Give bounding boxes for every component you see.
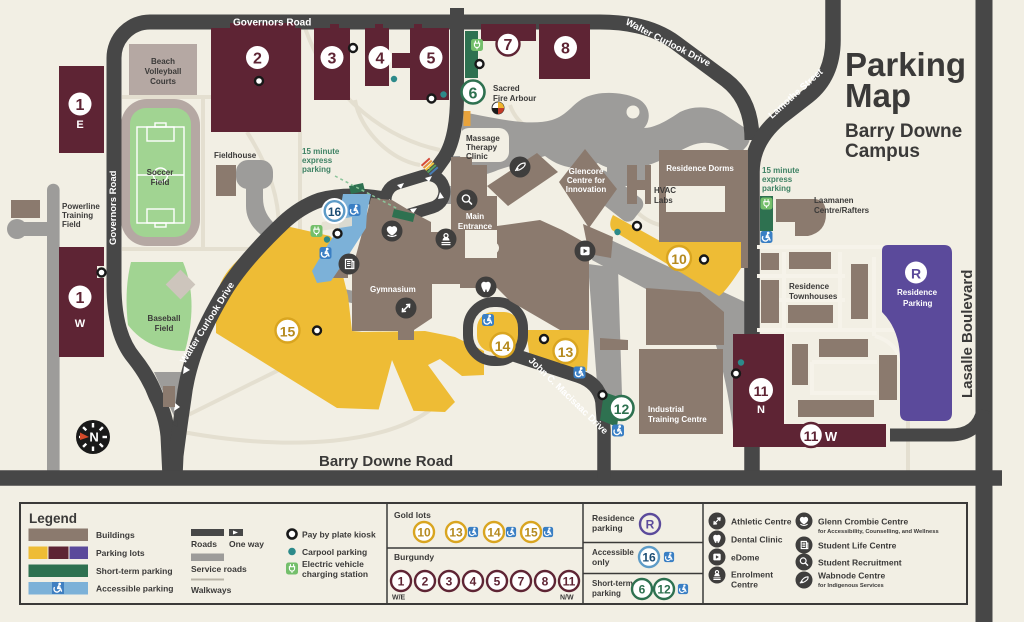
svg-text:Clinic: Clinic [466, 152, 488, 161]
svg-text:Short-term: Short-term [592, 579, 633, 588]
svg-text:3: 3 [446, 575, 453, 589]
svg-text:W/E: W/E [392, 595, 406, 602]
svg-text:HVAC: HVAC [654, 186, 676, 195]
svg-text:Therapy: Therapy [466, 143, 498, 152]
svg-text:eDome: eDome [731, 553, 760, 563]
svg-text:Fieldhouse: Fieldhouse [214, 151, 257, 160]
svg-text:11: 11 [804, 428, 819, 444]
svg-text:Soccer: Soccer [147, 168, 174, 177]
svg-text:Powerline: Powerline [62, 202, 100, 211]
svg-text:Barry Downe: Barry Downe [845, 121, 962, 142]
svg-text:express: express [302, 156, 333, 165]
svg-text:Lasalle Boulevard: Lasalle Boulevard [959, 270, 976, 398]
svg-text:parking: parking [302, 165, 331, 174]
svg-text:2: 2 [422, 575, 429, 589]
svg-text:Governors Road: Governors Road [108, 170, 119, 245]
svg-text:Pay by plate kiosk: Pay by plate kiosk [302, 530, 376, 540]
svg-text:Courts: Courts [150, 77, 176, 86]
svg-text:Beach: Beach [151, 57, 175, 66]
svg-text:Parking lots: Parking lots [96, 548, 145, 558]
svg-text:Laamanen: Laamanen [814, 196, 854, 205]
svg-text:6: 6 [639, 583, 646, 597]
svg-text:R: R [646, 518, 655, 532]
svg-text:Gymnasium: Gymnasium [370, 285, 416, 294]
svg-text:3: 3 [328, 51, 337, 68]
svg-text:16: 16 [642, 551, 656, 565]
svg-text:10: 10 [417, 526, 431, 540]
svg-text:Glenn Crombie Centre: Glenn Crombie Centre [818, 517, 908, 527]
svg-text:15: 15 [280, 324, 296, 340]
svg-text:Barry Downe Road: Barry Downe Road [319, 453, 453, 470]
svg-text:11: 11 [754, 383, 769, 399]
svg-text:Wabnode Centre: Wabnode Centre [818, 571, 885, 581]
svg-text:4: 4 [376, 51, 385, 68]
svg-text:Buildings: Buildings [96, 530, 135, 540]
svg-text:Governors Road: Governors Road [233, 18, 311, 29]
svg-text:15 minute: 15 minute [762, 166, 800, 175]
svg-text:Campus: Campus [845, 141, 920, 162]
svg-text:Fire Arbour: Fire Arbour [493, 94, 536, 103]
svg-text:parking: parking [592, 589, 621, 598]
svg-text:Field: Field [151, 178, 170, 187]
svg-text:8: 8 [561, 41, 570, 58]
svg-text:15: 15 [524, 526, 538, 540]
svg-text:Field: Field [155, 324, 174, 333]
svg-text:Innovation: Innovation [566, 185, 607, 194]
svg-text:Short-term parking: Short-term parking [96, 566, 173, 576]
svg-text:Massage: Massage [466, 134, 500, 143]
svg-text:Carpool parking: Carpool parking [302, 547, 367, 557]
svg-text:Glencore: Glencore [569, 167, 604, 176]
svg-text:5: 5 [427, 51, 436, 68]
svg-text:1: 1 [398, 575, 405, 589]
svg-text:N: N [757, 404, 765, 416]
svg-text:express: express [762, 175, 793, 184]
svg-text:Parking: Parking [903, 299, 932, 308]
svg-text:13: 13 [558, 344, 574, 360]
svg-text:Main: Main [466, 212, 484, 221]
svg-text:Walkways: Walkways [191, 585, 232, 595]
svg-text:R: R [911, 266, 921, 282]
svg-text:12: 12 [657, 583, 671, 597]
svg-text:Centre: Centre [731, 580, 758, 590]
svg-text:Burgundy: Burgundy [394, 552, 434, 562]
svg-text:Dental Clinic: Dental Clinic [731, 535, 783, 545]
svg-text:Student Recruitment: Student Recruitment [818, 558, 902, 568]
svg-text:parking: parking [762, 184, 791, 193]
svg-text:Sacred: Sacred [493, 84, 520, 93]
svg-text:N/W: N/W [560, 595, 574, 602]
svg-text:10: 10 [671, 251, 687, 267]
svg-text:Athletic Centre: Athletic Centre [731, 517, 792, 527]
svg-text:2: 2 [253, 51, 262, 68]
svg-text:Roads: Roads [191, 539, 217, 549]
svg-text:Accessible parking: Accessible parking [96, 584, 173, 594]
svg-text:for Indigenous Services: for Indigenous Services [818, 583, 884, 589]
svg-text:6: 6 [469, 86, 478, 103]
svg-text:15 minute: 15 minute [302, 147, 340, 156]
svg-text:7: 7 [504, 37, 513, 54]
svg-text:1: 1 [76, 97, 85, 114]
svg-text:for Accessibility, Counselling: for Accessibility, Counselling, and Well… [818, 529, 939, 535]
svg-text:Enrolment: Enrolment [731, 570, 773, 580]
svg-text:Labs: Labs [654, 196, 673, 205]
svg-text:charging station: charging station [302, 569, 368, 579]
svg-text:Residence: Residence [789, 282, 830, 291]
svg-text:Industrial: Industrial [648, 405, 684, 414]
svg-text:Gold lots: Gold lots [394, 510, 431, 520]
svg-text:Residence Dorms: Residence Dorms [666, 164, 734, 173]
svg-text:14: 14 [495, 338, 511, 354]
svg-text:Accessible: Accessible [592, 548, 634, 557]
svg-text:Training: Training [62, 211, 93, 220]
svg-text:12: 12 [614, 401, 630, 417]
svg-text:W: W [825, 429, 838, 444]
svg-text:Field: Field [62, 220, 81, 229]
svg-text:11: 11 [563, 575, 576, 589]
svg-text:E: E [76, 119, 83, 131]
svg-text:16: 16 [328, 205, 342, 219]
svg-text:7: 7 [518, 575, 525, 589]
svg-text:8: 8 [542, 575, 549, 589]
svg-text:Service roads: Service roads [191, 564, 247, 574]
svg-text:only: only [592, 557, 610, 567]
svg-text:Centre for: Centre for [567, 176, 605, 185]
svg-text:Volleyball: Volleyball [145, 67, 182, 76]
svg-text:Student Life Centre: Student Life Centre [818, 541, 897, 551]
svg-text:4: 4 [470, 575, 477, 589]
svg-text:Townhouses: Townhouses [789, 292, 838, 301]
svg-text:Baseball: Baseball [148, 314, 181, 323]
svg-text:Training Centre: Training Centre [648, 415, 707, 424]
svg-text:W: W [75, 318, 86, 330]
svg-text:One way: One way [229, 539, 264, 549]
svg-text:Electric vehicle: Electric vehicle [302, 559, 364, 569]
svg-text:14: 14 [487, 526, 501, 540]
svg-text:Residence: Residence [592, 513, 635, 523]
svg-text:5: 5 [494, 575, 501, 589]
svg-text:N: N [89, 430, 98, 445]
svg-text:13: 13 [449, 526, 463, 540]
svg-text:Map: Map [845, 77, 911, 114]
svg-text:Legend: Legend [29, 511, 77, 526]
svg-text:1: 1 [76, 290, 85, 307]
svg-text:Residence: Residence [897, 288, 938, 297]
svg-text:parking: parking [592, 523, 623, 533]
svg-text:Entrance: Entrance [458, 222, 493, 231]
svg-text:Centre/Rafters: Centre/Rafters [814, 206, 870, 215]
